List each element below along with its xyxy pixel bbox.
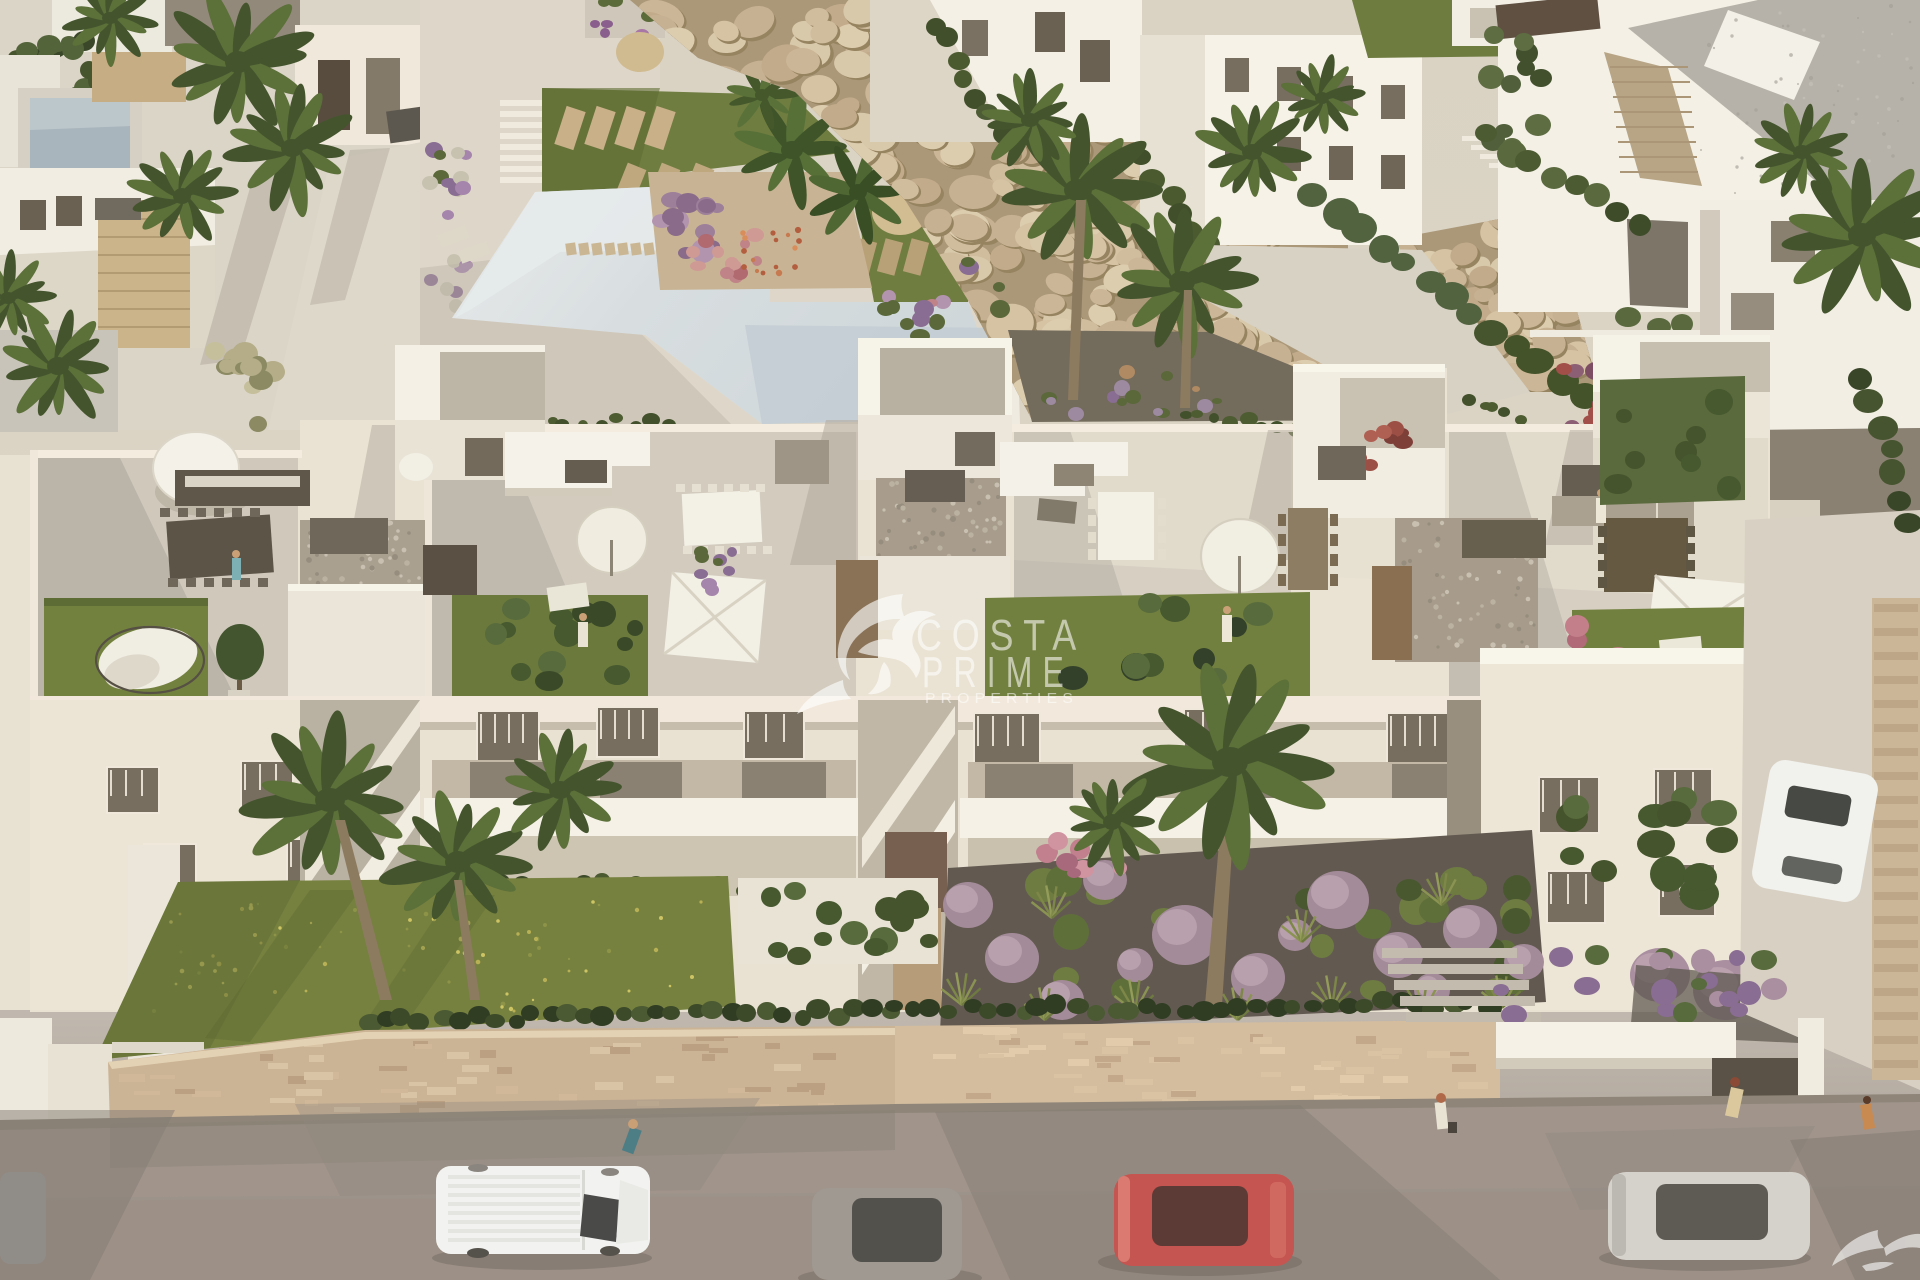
svg-text:PROPERTIES: PROPERTIES [925,690,1078,707]
